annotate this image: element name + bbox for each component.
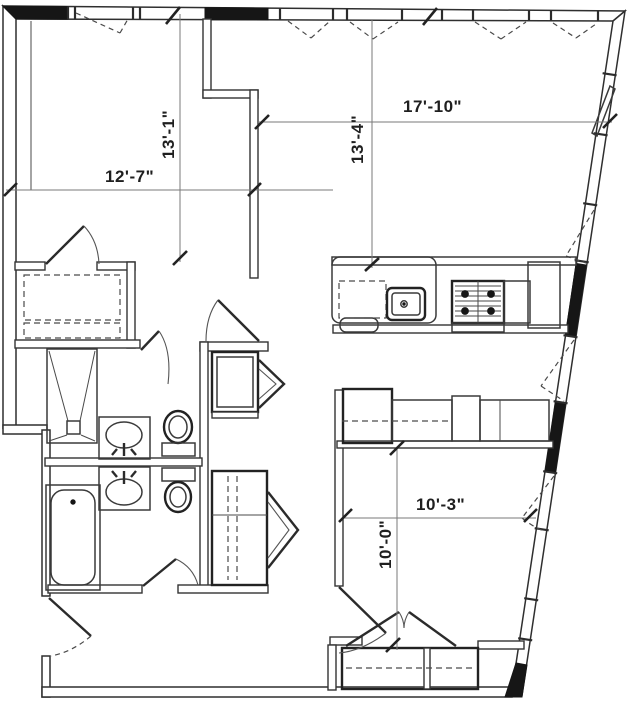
door-swing-arc xyxy=(84,226,99,264)
entry-door-swing xyxy=(51,636,91,656)
toilet-bowl-inner xyxy=(169,416,187,438)
refrigerator xyxy=(528,262,560,328)
casement-swing-icon xyxy=(350,22,398,39)
utility-closets xyxy=(212,352,298,585)
bathroom-2 xyxy=(46,467,195,590)
bedroom1-closet xyxy=(24,275,120,338)
bath2-bottom-wall-left xyxy=(48,585,142,593)
shower xyxy=(47,349,97,443)
dim-label-bedroom2-depth: 10'-0" xyxy=(376,520,395,569)
dishwasher xyxy=(339,281,386,318)
tub-drain xyxy=(71,500,75,504)
closet-door-leaf xyxy=(409,612,456,646)
dim-label-living-width: 17'-10" xyxy=(403,97,462,116)
washer-dryer xyxy=(212,352,258,412)
exterior-wall-left xyxy=(3,6,16,428)
bathroom-1 xyxy=(47,349,195,459)
exterior-wall-left-jog xyxy=(3,425,47,434)
exterior-wall-right-angled xyxy=(512,11,626,695)
bath-block-top-wall xyxy=(200,342,268,351)
bedroom1-wall-lower xyxy=(250,90,258,278)
solid-wall-segment xyxy=(205,8,268,20)
closet1-top-wall-left xyxy=(15,262,45,270)
door-leaf xyxy=(218,300,259,341)
linen-closet xyxy=(212,471,267,585)
toilet-tank xyxy=(162,443,195,456)
bifold-door xyxy=(259,360,284,408)
washer-dryer-inner xyxy=(217,357,253,407)
closet-shelf xyxy=(24,323,120,338)
closet-shelf xyxy=(24,275,120,320)
wall-inner-face-detail xyxy=(16,21,31,190)
bedroom2-bottom-wall-right xyxy=(478,641,524,649)
entry-door-leaf xyxy=(49,598,91,636)
foyer-closet-wall xyxy=(328,645,336,690)
solid-wall-segment xyxy=(545,402,566,474)
closet-row-cabinet xyxy=(452,396,480,441)
closet-row-section xyxy=(480,400,549,441)
counter-section xyxy=(504,281,530,323)
door-leaf xyxy=(339,587,386,633)
toilet-tank xyxy=(162,468,195,481)
bedroom2-closet-row xyxy=(337,389,553,448)
corner-column xyxy=(505,663,527,697)
wd-bottom-wall xyxy=(212,412,258,418)
exterior-swings xyxy=(76,13,615,531)
door-leaf xyxy=(143,559,176,586)
bedroom2-closet xyxy=(342,612,478,689)
door-swing-arc xyxy=(176,559,198,585)
toilet-bowl-inner xyxy=(170,487,186,507)
dim-label-bedroom2-width: 10'-3" xyxy=(416,495,465,514)
door-leaf xyxy=(141,331,159,350)
bifold-door-inner xyxy=(268,502,289,558)
casement-swing-icon xyxy=(475,22,526,39)
door-swing-arc xyxy=(159,331,169,384)
dim-label-bedroom1-depth: 13'-1" xyxy=(159,110,178,159)
bath2-bottom-wall-right xyxy=(178,585,268,593)
closet-door-leaf xyxy=(346,612,399,646)
dim-label-living-depth: 13'-4" xyxy=(348,115,367,164)
bedroom2-left-wall xyxy=(335,390,343,586)
floor-plan-drawing: 12'-7" 13'-1" 17'-10" 13'-4" 10'-3" 10'-… xyxy=(0,0,640,701)
faucet-icon xyxy=(112,471,136,484)
faucet-icon xyxy=(112,443,136,456)
closet1-bottom-wall xyxy=(15,340,140,348)
wardrobe-box xyxy=(343,389,392,443)
bifold-door xyxy=(268,492,298,568)
floor-plan-page: 12'-7" 13'-1" 17'-10" 13'-4" 10'-3" 10'-… xyxy=(0,0,640,701)
casement-swing-icon xyxy=(553,23,596,38)
kitchen-sink-basin xyxy=(392,293,420,315)
closet1-right-wall xyxy=(127,262,135,348)
casement-swing-icon xyxy=(288,21,330,38)
exterior-wall-top xyxy=(3,6,625,21)
door-leaf xyxy=(46,226,84,264)
door-swing-arc xyxy=(206,300,218,341)
shower-drain xyxy=(67,421,80,434)
dim-label-bedroom1-width: 12'-7" xyxy=(105,167,154,186)
counter-back-line xyxy=(332,257,576,265)
bedroom1-wall-upper xyxy=(203,19,211,98)
